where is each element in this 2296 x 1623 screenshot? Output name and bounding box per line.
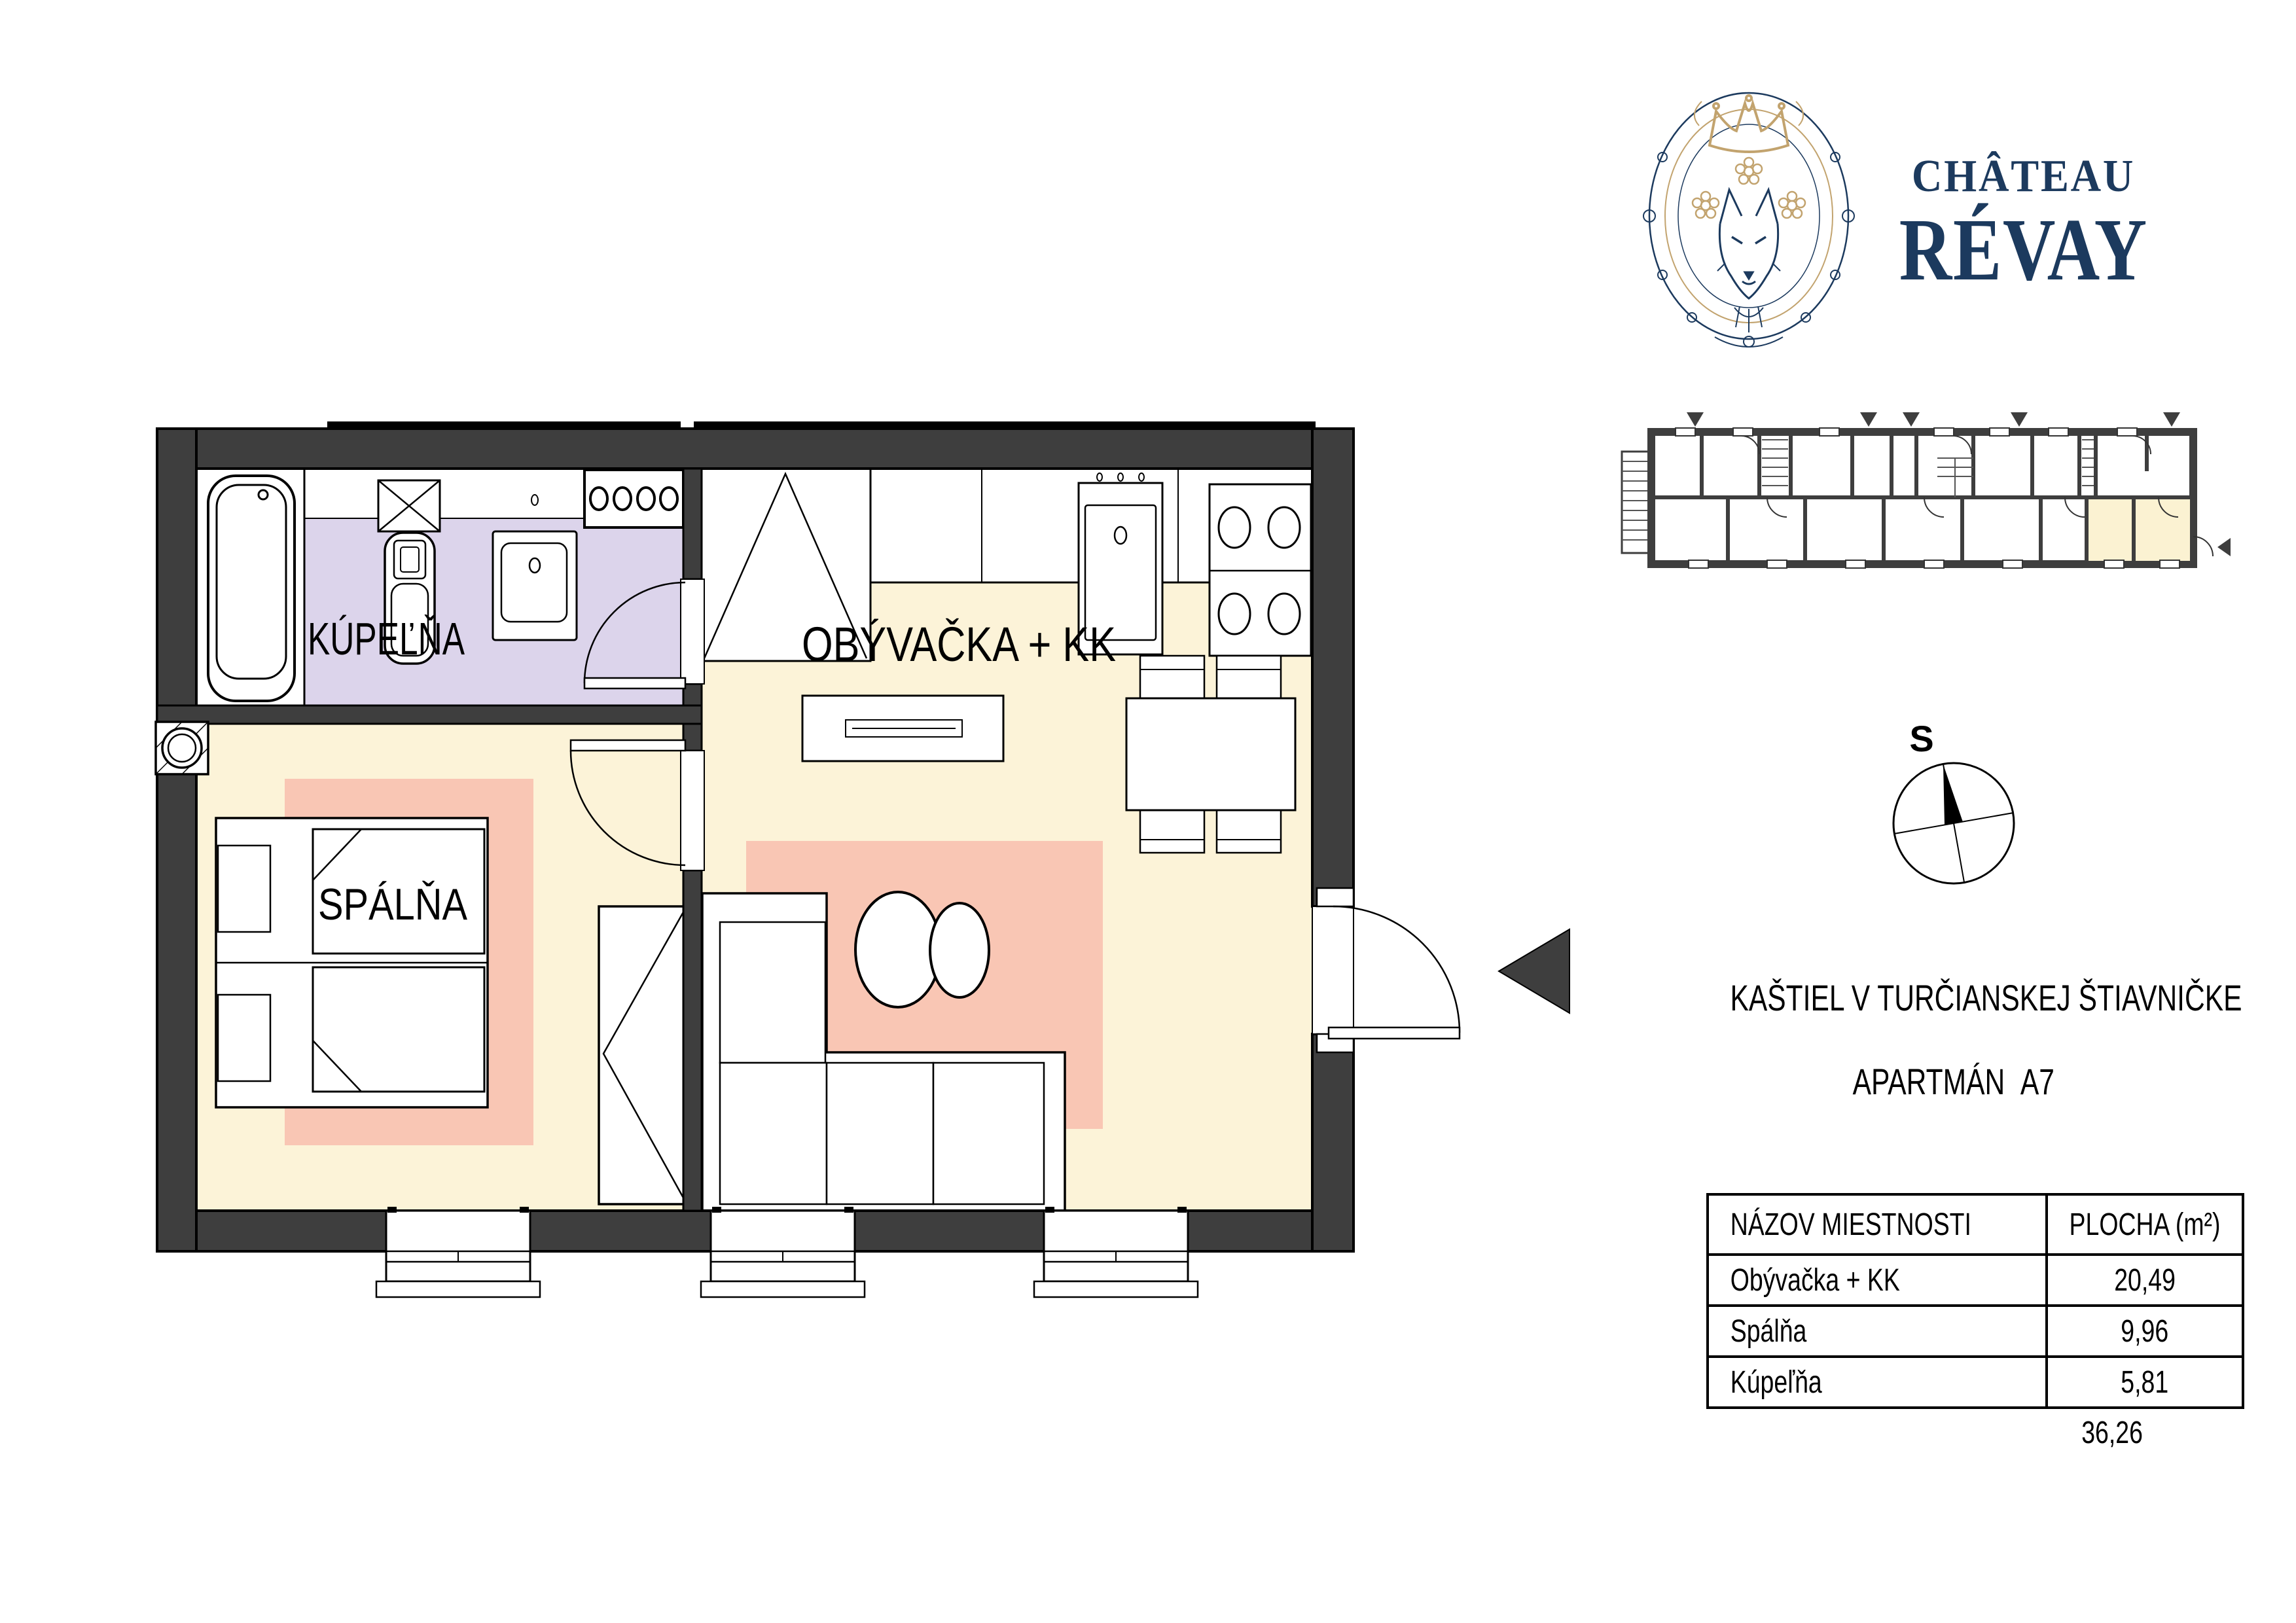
table-row: Obývačka + KK 20,49 bbox=[1708, 1255, 2243, 1306]
living-label: OBÝVAČKA + KK bbox=[802, 617, 1116, 671]
stove bbox=[1210, 484, 1311, 656]
window bbox=[376, 1207, 540, 1297]
towel-radiator bbox=[584, 470, 683, 527]
window bbox=[701, 1207, 865, 1297]
floorplan-sheet: KÚPEĽŇA OBÝVAČKA + KK SPÁLŇA bbox=[0, 0, 2296, 1623]
project-title: KAŠTIEL V TURČIANSKEJ ŠTIAVNIČKE bbox=[1649, 976, 2258, 1019]
table-row: Kúpeľňa 5,81 bbox=[1708, 1357, 2243, 1408]
bedroom-label: SPÁLŇA bbox=[318, 880, 468, 929]
wolf-icon bbox=[1717, 190, 1780, 332]
vent-box-icon bbox=[378, 480, 440, 531]
brand-line2: RÉVAY bbox=[1899, 199, 2148, 301]
table-row: Spálňa 9,96 bbox=[1708, 1306, 2243, 1357]
area-total: 36,26 bbox=[2036, 1415, 2189, 1451]
header-room-name: NÁZOV MIESTNOSTI bbox=[1709, 1207, 1971, 1243]
table-header-row: NÁZOV MIESTNOSTI PLOCHA (m²) bbox=[1708, 1194, 2243, 1255]
coffee-tables bbox=[855, 892, 989, 1007]
apartment-subtitle: APARTMÁN A7 bbox=[1649, 1060, 2258, 1103]
tv-sideboard bbox=[802, 696, 1003, 761]
highlighted-apartment bbox=[2087, 499, 2190, 561]
header-area: PLOCHA (m²) bbox=[2070, 1207, 2221, 1243]
brand-block: CHÂTEAU RÉVAY bbox=[1870, 151, 2178, 301]
entrance-arrow-icon bbox=[1499, 929, 1570, 1013]
area-table: NÁZOV MIESTNOSTI PLOCHA (m²) Obývačka + … bbox=[1706, 1193, 2244, 1409]
twin-beds bbox=[216, 818, 488, 1107]
compass: S bbox=[1893, 718, 2014, 883]
brand-line1: CHÂTEAU bbox=[1912, 151, 2135, 203]
building-overview-plan bbox=[1622, 412, 2231, 568]
entrance-door bbox=[1312, 888, 1460, 1052]
lintel-lines bbox=[327, 421, 1316, 430]
wardrobe bbox=[599, 906, 684, 1204]
chimney bbox=[156, 722, 208, 774]
crest-flowers bbox=[1693, 158, 1805, 218]
bathtub bbox=[208, 476, 295, 701]
logo-crest bbox=[1643, 93, 1854, 347]
crest-crown bbox=[1710, 96, 1788, 152]
apartment-plan: KÚPEĽŇA OBÝVAČKA + KK SPÁLŇA bbox=[156, 421, 1570, 1297]
compass-north-label: S bbox=[1909, 718, 1933, 759]
bathroom-label: KÚPEĽŇA bbox=[308, 613, 465, 664]
window bbox=[1034, 1207, 1198, 1297]
compass-needle bbox=[1943, 764, 1963, 825]
windows bbox=[376, 1207, 1198, 1297]
